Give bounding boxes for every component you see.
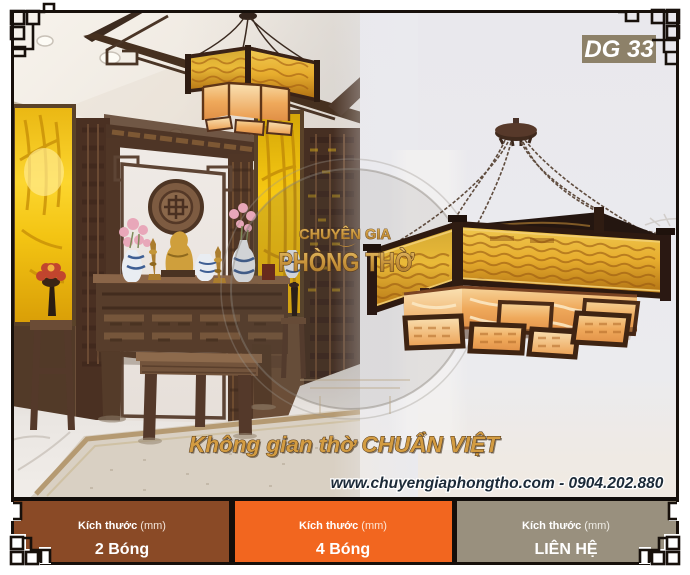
svg-text:Không gian thờ CHUẨN VIỆT: Không gian thờ CHUẨN VIỆT (189, 432, 501, 457)
svg-text:PHÒNG THỜ: PHÒNG THỜ (278, 247, 415, 277)
svg-text:Kích thước (mm): Kích thước (mm) (78, 520, 166, 532)
svg-text:4 Bóng: 4 Bóng (316, 541, 370, 558)
svg-text:CHUYÊN GIA: CHUYÊN GIA (299, 225, 392, 243)
svg-text:2 Bóng: 2 Bóng (95, 541, 149, 558)
svg-text:LIÊN HỆ: LIÊN HỆ (534, 539, 597, 558)
svg-text:Kích thước (mm): Kích thước (mm) (299, 520, 387, 532)
svg-text:www.chuyengiaphongtho.com - 09: www.chuyengiaphongtho.com - 0904.202.880 (331, 475, 664, 492)
svg-text:DG 33: DG 33 (584, 36, 654, 63)
svg-text:Kích thước (mm): Kích thước (mm) (522, 520, 610, 532)
